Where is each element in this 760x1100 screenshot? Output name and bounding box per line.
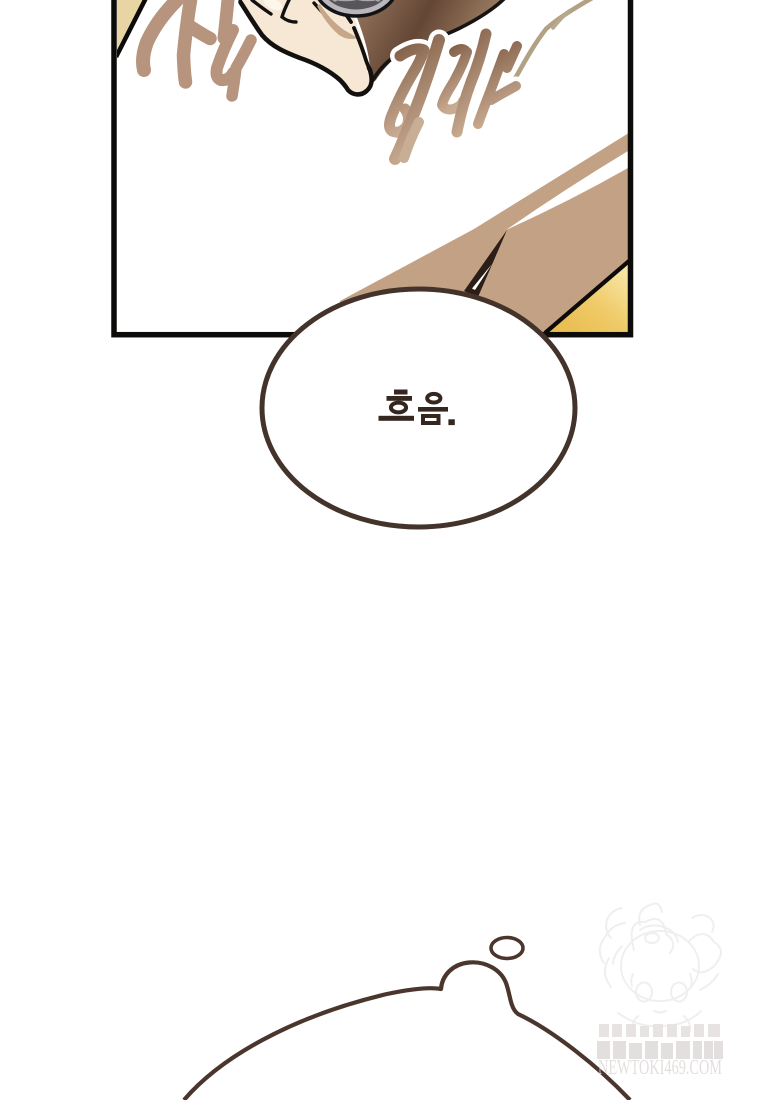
- svg-text:NEWTOKI469.COM: NEWTOKI469.COM: [598, 1055, 722, 1079]
